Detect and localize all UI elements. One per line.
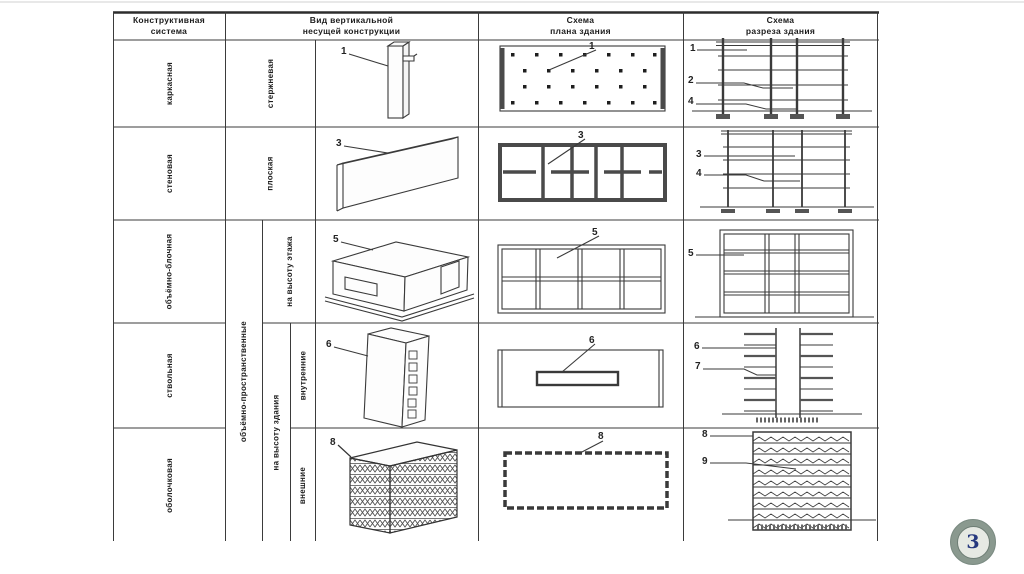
type-label-storey-height-text: на высоту этажа bbox=[285, 236, 294, 307]
figure-label: 8 bbox=[330, 438, 336, 448]
plan-volumetric-blocks-drawing bbox=[498, 236, 665, 313]
type-label-rod: стержневая bbox=[225, 40, 316, 127]
figure-label: 3 bbox=[696, 150, 702, 160]
header-plan-scheme: Схема плана здания bbox=[478, 12, 683, 40]
section-trunk-cantilevers-drawing bbox=[702, 328, 862, 420]
header-plan-scheme-label: Схема плана здания bbox=[550, 15, 611, 38]
system-label-volumetric-block: объёмно-блочная bbox=[113, 220, 225, 323]
figure-label: 4 bbox=[688, 97, 694, 107]
figure-label: 1 bbox=[690, 44, 696, 54]
system-label-volumetric-block-text: объёмно-блочная bbox=[165, 234, 174, 310]
header-section-scheme-label: Схема разреза здания bbox=[746, 15, 815, 38]
plan-walls-drawing bbox=[500, 139, 665, 200]
figure-label: 5 bbox=[688, 249, 694, 259]
slide: Конструктивная система Вид вертикальной … bbox=[0, 0, 1024, 574]
section-volumetric-blocks-drawing bbox=[695, 230, 874, 317]
figure-label: 1 bbox=[589, 42, 595, 52]
header-structural-system-label: Конструктивная система bbox=[133, 15, 205, 38]
type-label-rod-text: стержневая bbox=[266, 59, 275, 108]
plan-trunk-core-drawing bbox=[498, 344, 663, 407]
section-shell-drawing bbox=[710, 432, 876, 530]
system-label-trunk-text: ствольная bbox=[165, 353, 174, 398]
figure-label: 8 bbox=[598, 432, 604, 442]
figure-label: 3 bbox=[578, 131, 584, 141]
figure-label: 2 bbox=[688, 76, 694, 86]
figure-label: 6 bbox=[589, 336, 595, 346]
figure-label: 6 bbox=[694, 342, 700, 352]
type-label-volumetric-spatial-text: объёмно-пространственные bbox=[239, 320, 248, 441]
axon-shell-lattice-drawing bbox=[338, 442, 457, 533]
type-label-building-height-text: на высоту здания bbox=[272, 395, 281, 471]
figure-label: 8 bbox=[702, 430, 708, 440]
slide-number-badge: 3 bbox=[950, 519, 996, 565]
figure-label: 9 bbox=[702, 457, 708, 467]
figure-label: 1 bbox=[341, 47, 347, 57]
header-vertical-structure-label: Вид вертикальной несущей конструкции bbox=[303, 15, 401, 38]
section-frame-drawing bbox=[692, 38, 872, 119]
figure-label: 5 bbox=[333, 235, 339, 245]
system-label-frame-text: каркасная bbox=[165, 62, 174, 105]
slide-number-badge-inner: 3 bbox=[957, 526, 990, 559]
type-label-external-text: внешние bbox=[299, 466, 308, 503]
type-label-internal-text: внутренние bbox=[299, 351, 308, 401]
figure-label: 7 bbox=[695, 362, 701, 372]
axon-trunk-drawing bbox=[334, 328, 429, 427]
plan-shell-drawing bbox=[505, 441, 667, 508]
slide-number: 3 bbox=[966, 531, 979, 553]
header-structural-system: Конструктивная система bbox=[113, 12, 225, 40]
type-label-storey-height: на высоту этажа bbox=[262, 220, 316, 323]
axon-frame-column-drawing bbox=[349, 42, 417, 118]
axon-wall-panel-drawing bbox=[337, 137, 458, 211]
plan-frame-columns-drawing bbox=[500, 46, 665, 111]
type-label-building-height: на высоту здания bbox=[262, 323, 290, 542]
figure-label: 4 bbox=[696, 169, 702, 179]
section-walls-drawing bbox=[700, 130, 874, 213]
type-label-internal: внутренние bbox=[290, 323, 316, 428]
figure-label: 6 bbox=[326, 340, 332, 350]
system-label-frame: каркасная bbox=[113, 40, 225, 127]
system-label-shell-text: оболочковая bbox=[165, 458, 174, 513]
type-label-flat: плоская bbox=[225, 127, 316, 220]
system-label-wall: стеновая bbox=[113, 127, 225, 220]
header-vertical-structure: Вид вертикальной несущей конструкции bbox=[225, 12, 478, 40]
figure-label: 5 bbox=[592, 228, 598, 238]
system-label-wall-text: стеновая bbox=[165, 154, 174, 193]
axon-volumetric-block-drawing bbox=[325, 242, 474, 321]
header-section-scheme: Схема разреза здания bbox=[683, 12, 878, 40]
type-label-external: внешние bbox=[290, 428, 316, 542]
figure-label: 3 bbox=[336, 139, 342, 149]
type-label-flat-text: плоская bbox=[266, 156, 275, 190]
type-label-volumetric-spatial: объёмно-пространственные bbox=[225, 220, 262, 542]
system-label-shell: оболочковая bbox=[113, 428, 225, 542]
system-label-trunk: ствольная bbox=[113, 323, 225, 428]
